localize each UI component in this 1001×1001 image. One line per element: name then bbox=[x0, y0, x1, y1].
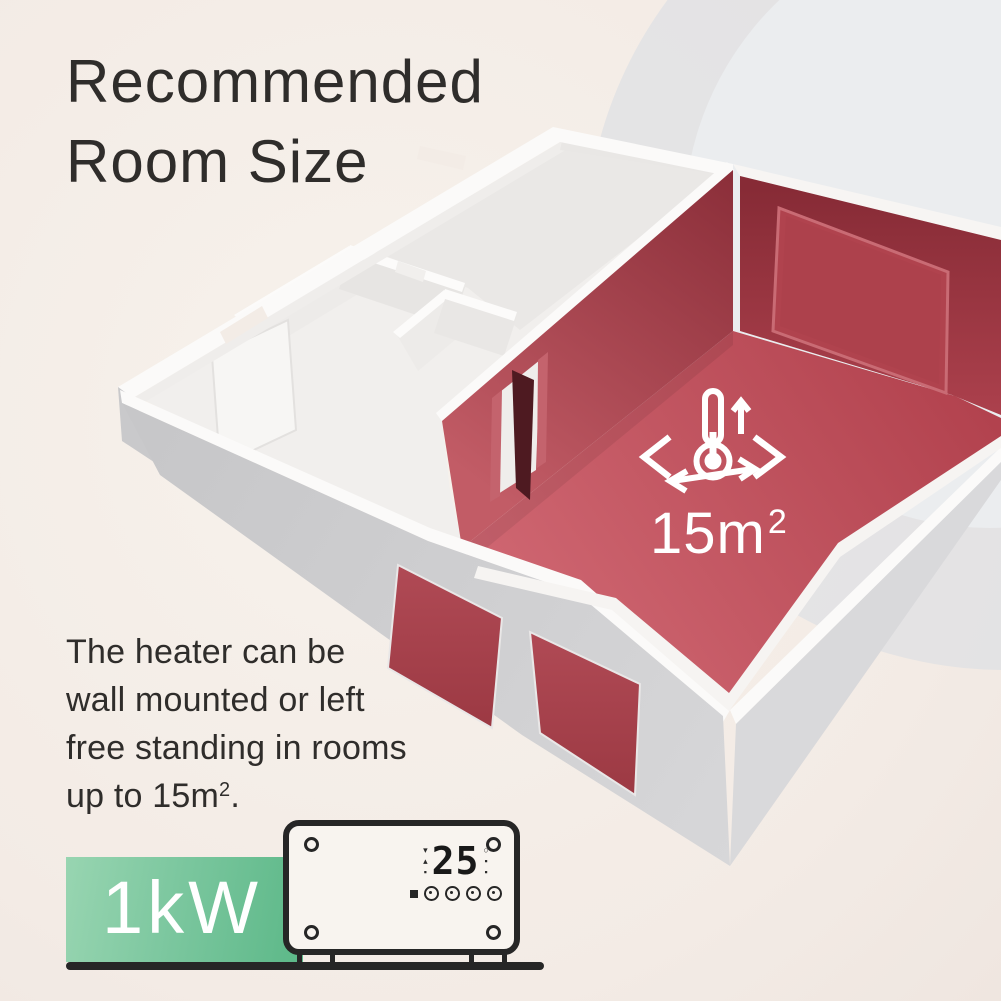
heater-illustration: ▾▴▪ 25 ○▪▪ bbox=[283, 820, 520, 972]
display-right-icons: ○▪▪ bbox=[483, 845, 488, 878]
power-badge-label: 1kW bbox=[66, 857, 303, 958]
description-line-3: free standing in rooms bbox=[66, 724, 407, 772]
title-line-2: Room Size bbox=[66, 122, 484, 202]
screw-icon bbox=[304, 925, 319, 940]
display-temperature: 25 bbox=[432, 841, 480, 881]
control-button-icon bbox=[424, 886, 439, 901]
heater-display: ▾▴▪ 25 ○▪▪ bbox=[408, 841, 504, 901]
heater-body: ▾▴▪ 25 ○▪▪ bbox=[283, 820, 520, 955]
control-button-icon bbox=[487, 886, 502, 901]
display-left-icons: ▾▴▪ bbox=[423, 845, 428, 878]
screw-icon bbox=[304, 837, 319, 852]
page-title: Recommended Room Size bbox=[66, 42, 484, 202]
infographic: Recommended Room Size 15m2 The heater ca… bbox=[0, 0, 1001, 1001]
description-line-2: wall mounted or left bbox=[66, 676, 407, 724]
screw-icon bbox=[486, 925, 501, 940]
room-area-label: 15m2 bbox=[650, 500, 788, 567]
power-button-icon bbox=[410, 890, 418, 898]
control-button-icon bbox=[466, 886, 481, 901]
control-button-icon bbox=[445, 886, 460, 901]
description-line-1: The heater can be bbox=[66, 628, 407, 676]
description-superscript: 2 bbox=[219, 779, 230, 801]
power-badge: 1kW bbox=[66, 857, 303, 962]
title-line-1: Recommended bbox=[66, 42, 484, 122]
area-value: 15m bbox=[650, 501, 766, 566]
description-line-4: up to 15m2. bbox=[66, 772, 407, 825]
heater-buttons bbox=[408, 886, 504, 901]
description-text: The heater can be wall mounted or left f… bbox=[66, 628, 407, 825]
area-superscript: 2 bbox=[768, 503, 788, 541]
thermometer-bulb-core bbox=[705, 453, 722, 470]
